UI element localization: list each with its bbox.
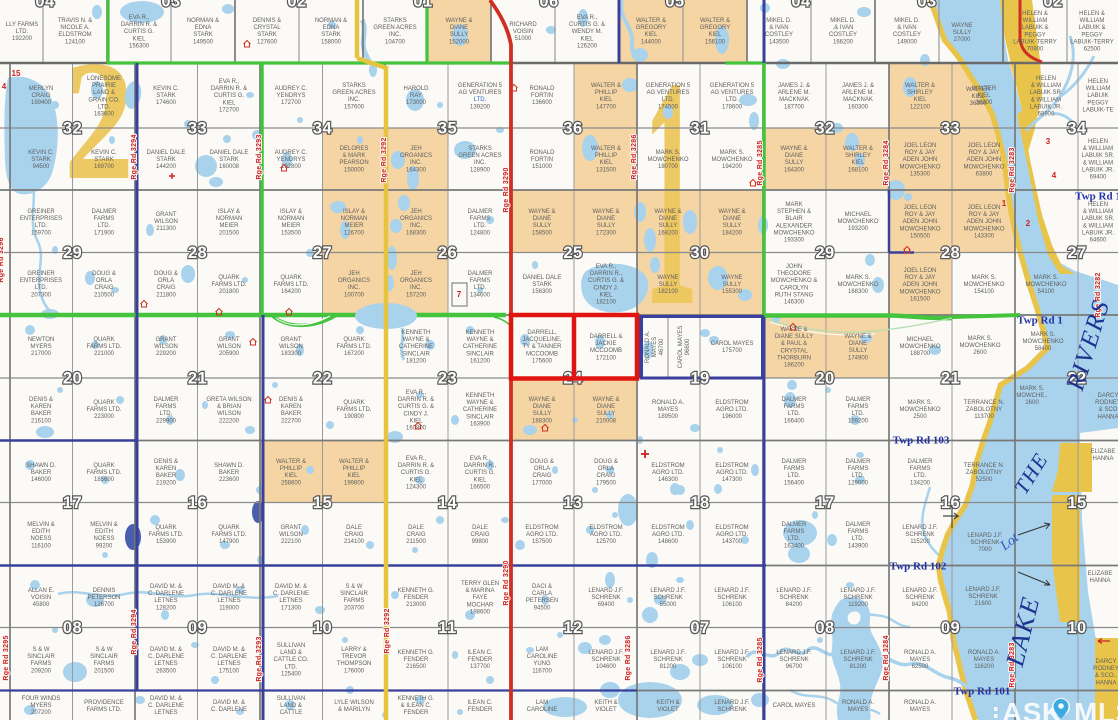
svg-text:Twp Rd 1: Twp Rd 1 [1075,191,1118,203]
svg-text:ELIZABEHANNA: ELIZABEHANNA [1088,571,1113,584]
svg-text:DENIS &KARENBAKER219200: DENIS &KARENBAKER219200 [154,459,178,486]
svg-text:34: 34 [313,120,333,138]
svg-text:26: 26 [438,244,457,262]
svg-text:1: 1 [1002,199,1007,208]
svg-text:DENIS &KARENBAKER222700: DENIS &KARENBAKER222700 [279,397,303,424]
svg-text:Rge Rd 3284: Rge Rd 3284 [883,635,890,680]
svg-text:08: 08 [63,619,82,637]
svg-text:4: 4 [2,82,7,91]
svg-text:ISLAY &NORMANMEIER201500: ISLAY &NORMANMEIER201500 [216,209,243,236]
svg-text:29: 29 [63,244,82,262]
svg-text:Rge Rd 3295: Rge Rd 3295 [3,635,10,680]
svg-text:KEVIN C.STARK174600: KEVIN C.STARK174600 [153,86,179,106]
svg-text:09: 09 [941,619,960,637]
svg-text:SULLIVANLAND &CATTLE: SULLIVANLAND &CATTLE [277,696,306,716]
svg-text:03: 03 [917,0,936,11]
svg-text:06: 06 [539,0,558,11]
svg-text:04: 04 [35,0,55,11]
svg-text:Rge Rd 3292: Rge Rd 3292 [384,608,391,653]
svg-text:MIKEL D.& IVANCOSTLEY143500: MIKEL D.& IVANCOSTLEY143500 [765,18,793,45]
svg-text:05: 05 [665,0,684,11]
svg-text:Rge Rd 3294: Rge Rd 3294 [131,609,138,654]
svg-text:15: 15 [313,494,332,512]
svg-text:02: 02 [1043,0,1062,11]
svg-text:13: 13 [563,494,582,512]
svg-text:14: 14 [438,494,458,512]
svg-text:CAROL MAYES: CAROL MAYES [773,703,816,709]
svg-text:DARCYRODNEY& SCOHANNA: DARCYRODNEY& SCOHANNA [1095,393,1118,420]
svg-text:29: 29 [815,244,834,262]
svg-text:27: 27 [313,244,332,262]
svg-text:16: 16 [188,494,207,512]
svg-text:02: 02 [287,0,306,11]
svg-text:10: 10 [1067,619,1086,637]
svg-text:33: 33 [941,120,960,138]
svg-text:DOUG &ORLACRAIG179500: DOUG &ORLACRAIG179500 [594,459,618,486]
svg-text:DOUG &ORLACRAIG210500: DOUG &ORLACRAIG210500 [92,271,116,298]
svg-text:GRANTWILSON183300: GRANTWILSON183300 [279,337,303,357]
svg-text:MIKEL D.,& IVANCOSTLEY166200: MIKEL D.,& IVANCOSTLEY166200 [829,18,857,45]
svg-text:4: 4 [1052,171,1057,180]
svg-text:Twp Rd 103: Twp Rd 103 [893,435,950,447]
svg-text:32: 32 [63,120,82,138]
svg-text:10: 10 [313,619,332,637]
svg-text:KEITH &VIOLET: KEITH &VIOLET [594,700,617,713]
svg-text:Rge Rd 3292: Rge Rd 3292 [381,137,388,182]
svg-text:34: 34 [1067,120,1087,138]
svg-text:GRANTWILSON211300: GRANTWILSON211300 [154,212,178,232]
svg-text:28: 28 [188,244,207,262]
svg-text:35: 35 [438,120,457,138]
svg-text:Rge Rd 3286: Rge Rd 3286 [625,635,632,680]
svg-text:RONALDFORTIN136600: RONALDFORTIN136600 [529,86,555,106]
svg-text:21: 21 [941,370,960,388]
svg-text:3: 3 [1046,137,1051,146]
svg-text:31: 31 [690,120,709,138]
svg-text:21: 21 [188,370,207,388]
svg-text:DOUG &ORLACRAIG177000: DOUG &ORLACRAIG177000 [530,459,554,486]
svg-text:DOUG &ORLACRAIG211800: DOUG &ORLACRAIG211800 [154,271,178,298]
svg-text:18: 18 [690,494,709,512]
svg-text:25: 25 [563,244,582,262]
svg-text:08: 08 [815,619,834,637]
svg-text:23: 23 [438,370,457,388]
svg-text:04: 04 [791,0,811,11]
svg-text:17: 17 [63,494,82,512]
svg-text:Rge Rd 3283: Rge Rd 3283 [1009,147,1016,192]
svg-text:DAVID M. &C. DARLENE: DAVID M. &C. DARLENE [211,700,247,713]
svg-text:PROVIDENCEFARMS LTD.: PROVIDENCEFARMS LTD. [84,700,124,713]
svg-text:RONALDFORTIN151000: RONALDFORTIN151000 [529,150,555,170]
svg-text:20: 20 [815,370,834,388]
svg-text:Twp Rd 102: Twp Rd 102 [890,561,947,573]
svg-text:33: 33 [188,120,207,138]
svg-text:Rge Rd 3286: Rge Rd 3286 [631,134,638,179]
svg-text:WAYNESULLY155300: WAYNESULLY155300 [721,275,742,295]
svg-text:ISLAY &NORMANMEIER153500: ISLAY &NORMANMEIER153500 [278,209,305,236]
svg-text:Rge Rd 3293: Rge Rd 3293 [256,134,263,179]
svg-text:Rge Rd 3294: Rge Rd 3294 [131,134,138,179]
svg-text:32: 32 [815,120,834,138]
svg-text:22: 22 [313,370,332,388]
svg-text:KEITH &VIOLET: KEITH &VIOLET [656,700,679,713]
svg-text:20: 20 [63,370,82,388]
svg-text:Rge Rd 3285: Rge Rd 3285 [757,637,764,682]
svg-text:ELIZABEHANNA: ELIZABEHANNA [1091,449,1116,462]
svg-text:Twp Rd 101: Twp Rd 101 [954,686,1011,698]
svg-text:Rge Rd 3290: Rge Rd 3290 [503,560,510,605]
svg-text:MERLYNCRAIG199400: MERLYNCRAIG199400 [29,86,54,106]
svg-text:DARCYRODNEY& SCO..HANNA: DARCYRODNEY& SCO..HANNA [1093,659,1118,686]
svg-text:12: 12 [563,619,582,637]
svg-text:Rge Rd 3290: Rge Rd 3290 [503,167,510,212]
svg-text:ISLAY &NORMANMEIER126700: ISLAY &NORMANMEIER126700 [341,209,368,236]
svg-text:LENARD J.F.SCHRENK: LENARD J.F.SCHRENK [714,700,750,713]
svg-text:Rge Rd 3285: Rge Rd 3285 [757,140,764,185]
svg-text:15: 15 [1067,494,1086,512]
svg-text:GRANTWILSON205900: GRANTWILSON205900 [217,337,241,357]
svg-text:Rge Rd 3293: Rge Rd 3293 [256,636,263,681]
svg-text:7: 7 [457,290,462,299]
svg-text:WAYNESULLY27000: WAYNESULLY27000 [951,23,972,43]
svg-text:LYLE WILSON& MARILYN: LYLE WILSON& MARILYN [334,700,374,713]
svg-text:27: 27 [1067,244,1086,262]
svg-text:01: 01 [413,0,432,11]
svg-text:19: 19 [690,370,709,388]
svg-text:36: 36 [563,120,582,138]
svg-text:Twp Rd 1: Twp Rd 1 [1017,315,1063,327]
svg-text:DALECRAIG211500: DALECRAIG211500 [406,525,426,545]
svg-text:DALECRAIG99800: DALECRAIG99800 [470,525,489,545]
svg-text:MELVIN &EDITHNOESS116100: MELVIN &EDITHNOESS116100 [27,522,55,549]
svg-text:Rge Rd 3296: Rge Rd 3296 [0,237,5,282]
svg-text:ILEAN C.FENDER137700: ILEAN C.FENDER137700 [467,650,493,670]
svg-text:30: 30 [690,244,709,262]
svg-text:03: 03 [161,0,180,11]
svg-text:WAYNESULLY182100: WAYNESULLY182100 [657,275,678,295]
svg-text:09: 09 [188,619,207,637]
svg-text:16: 16 [941,494,960,512]
svg-text:GRANTWILSON229200: GRANTWILSON229200 [154,337,178,357]
svg-text:DENIS &KARENBAKER216100: DENIS &KARENBAKER216100 [29,397,53,424]
svg-text:28: 28 [941,244,960,262]
svg-text:MLS: MLS [1074,697,1118,720]
svg-text:ILEAN C.FENDER: ILEAN C.FENDER [467,700,493,713]
svg-text:2: 2 [1026,219,1031,228]
svg-text:GRANTWILSON222100: GRANTWILSON222100 [279,525,303,545]
svg-text:17: 17 [815,494,834,512]
svg-text:MIKEL D.& IVANCOSTLEY149000: MIKEL D.& IVANCOSTLEY149000 [893,18,921,45]
svg-text:11: 11 [438,619,456,637]
svg-text:Rge Rd 3284: Rge Rd 3284 [883,140,890,185]
svg-text:1: 1 [643,10,697,375]
svg-text:NEWTONMYERS217000: NEWTONMYERS217000 [28,337,55,357]
svg-text:DALECRAIG214100: DALECRAIG214100 [344,525,365,545]
svg-text:KEVIN C.STARK169700: KEVIN C.STARK169700 [91,150,117,170]
svg-text:15: 15 [12,69,21,78]
svg-text:07: 07 [690,619,709,637]
